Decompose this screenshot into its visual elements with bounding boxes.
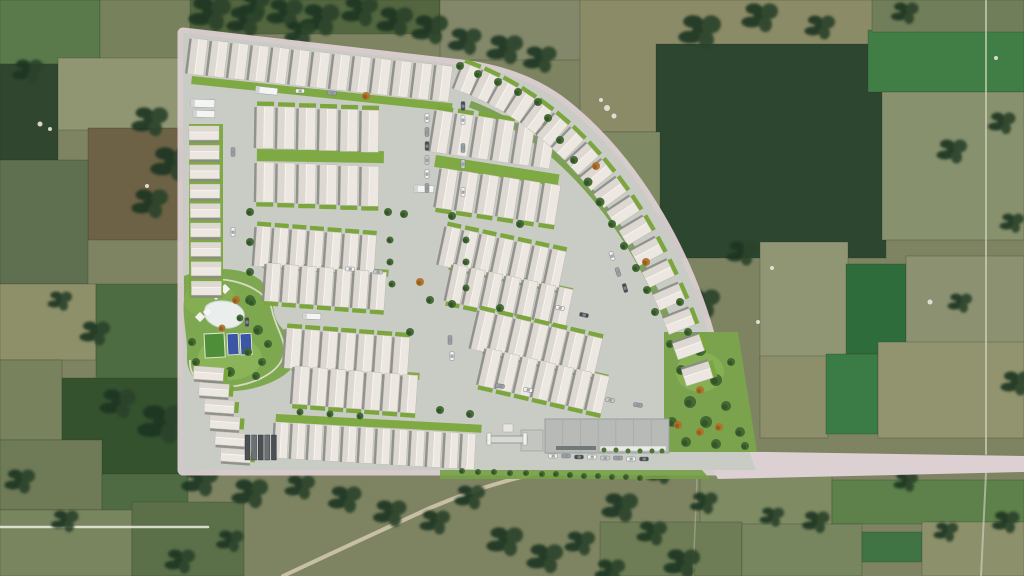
- farm-building: [756, 320, 760, 324]
- street-tree: [523, 470, 529, 476]
- house: [191, 242, 221, 259]
- street-tree: [539, 471, 545, 477]
- field-patch: [862, 532, 922, 562]
- field-patch: [96, 284, 186, 380]
- house-shadow: [192, 256, 221, 259]
- street-tree: [637, 475, 643, 481]
- street-tree: [556, 136, 564, 144]
- street-tree: [643, 286, 651, 294]
- front-garden: [257, 102, 274, 107]
- house: [343, 370, 364, 414]
- park-tree: [192, 358, 200, 366]
- field-patch: [742, 524, 862, 576]
- roof-slope: [190, 184, 220, 190]
- farm-building: [928, 300, 933, 305]
- bush: [602, 448, 607, 453]
- house: [314, 267, 334, 311]
- house: [338, 105, 358, 152]
- front-garden: [341, 105, 358, 110]
- house-shadow: [192, 276, 221, 279]
- roof-slope: [361, 166, 369, 206]
- field-patch: [868, 30, 1024, 92]
- car: [614, 456, 623, 460]
- loading-trucks: [245, 435, 276, 460]
- field-patch: [760, 356, 828, 438]
- house: [336, 328, 357, 374]
- house: [359, 105, 379, 152]
- house: [191, 223, 221, 240]
- car: [425, 114, 429, 123]
- house: [322, 227, 342, 273]
- house: [374, 428, 391, 465]
- street-tree: [581, 473, 587, 479]
- street-tree: [459, 468, 465, 474]
- house-row-west-col-upper: [189, 126, 221, 298]
- street-tree: [620, 242, 628, 250]
- bush: [638, 449, 643, 454]
- house: [332, 268, 352, 312]
- house: [209, 415, 245, 433]
- house: [391, 429, 408, 466]
- bush: [614, 448, 619, 453]
- house: [204, 399, 240, 417]
- house: [357, 230, 377, 276]
- street-tree: [362, 92, 370, 100]
- guard-booth: [503, 424, 513, 432]
- park-tree: [258, 358, 266, 366]
- front-garden: [278, 102, 295, 107]
- street-tree: [642, 258, 650, 266]
- farm-building: [38, 122, 43, 127]
- truck: [271, 435, 276, 460]
- house: [323, 425, 340, 462]
- car: [448, 336, 452, 345]
- house: [279, 264, 299, 308]
- field-patch: [656, 44, 886, 258]
- house: [340, 426, 357, 463]
- house: [300, 325, 321, 371]
- house: [397, 374, 418, 418]
- house: [190, 165, 220, 182]
- park-tree: [252, 372, 260, 380]
- park-tree: [735, 427, 745, 437]
- house: [296, 103, 316, 150]
- roof-slope: [189, 145, 219, 151]
- house: [254, 101, 274, 148]
- street-tree: [567, 472, 573, 478]
- house: [198, 382, 234, 400]
- house: [189, 145, 219, 162]
- street-tree: [676, 298, 684, 306]
- house: [190, 204, 220, 221]
- front-garden: [361, 206, 378, 211]
- house: [252, 221, 272, 267]
- house-shadow: [192, 295, 221, 298]
- car: [562, 454, 571, 458]
- street-tree: [246, 208, 254, 216]
- house: [261, 263, 281, 307]
- house: [275, 102, 295, 149]
- car: [425, 128, 429, 137]
- car: [588, 455, 597, 459]
- house: [254, 162, 274, 207]
- street-tree: [246, 268, 254, 276]
- farm-building: [770, 266, 774, 270]
- car: [327, 91, 336, 95]
- street-tree: [389, 281, 396, 288]
- street-tree: [623, 474, 629, 480]
- car: [425, 184, 429, 193]
- field-patch: [832, 480, 1024, 524]
- house: [361, 371, 382, 415]
- roof-slope: [190, 165, 220, 171]
- street-tree: [651, 308, 659, 316]
- bush: [650, 449, 655, 454]
- street-tree: [496, 304, 504, 312]
- park-tree: [681, 437, 691, 447]
- street-tree: [448, 212, 456, 220]
- street-tree: [327, 411, 334, 418]
- house: [296, 164, 316, 209]
- street-tree: [400, 210, 408, 218]
- house: [275, 163, 295, 208]
- house: [287, 224, 307, 270]
- house: [459, 433, 476, 470]
- sports-field: [204, 333, 225, 358]
- car: [461, 160, 465, 169]
- field-patch: [878, 342, 1024, 438]
- house: [325, 369, 346, 413]
- farm-building: [599, 98, 603, 102]
- car: [345, 267, 354, 271]
- street-tree: [456, 62, 464, 70]
- car: [461, 188, 465, 197]
- bush: [626, 449, 631, 454]
- field-patch: [0, 0, 100, 64]
- farm-building: [48, 127, 52, 131]
- street-tree: [474, 70, 482, 78]
- bush: [660, 449, 665, 454]
- house: [289, 423, 306, 460]
- street-tree: [387, 259, 394, 266]
- field-patch: [0, 284, 96, 360]
- house: [189, 126, 219, 143]
- street-tree: [534, 98, 542, 106]
- farm-building: [604, 105, 610, 111]
- house: [425, 431, 442, 468]
- street-tree: [553, 471, 559, 477]
- park-tree: [232, 296, 240, 304]
- street-tree: [596, 198, 605, 207]
- house-shadow: [192, 237, 221, 240]
- street-tree: [248, 298, 256, 306]
- roof-slope: [277, 163, 285, 203]
- house: [307, 367, 328, 411]
- gate-post: [523, 433, 527, 445]
- roof-slope: [190, 204, 220, 210]
- park-tree: [696, 386, 704, 394]
- park-tree: [727, 358, 735, 366]
- roof-slope: [298, 164, 306, 204]
- house: [215, 432, 251, 450]
- car: [373, 270, 382, 274]
- gate-canopy: [487, 436, 527, 443]
- sport-court: [227, 333, 239, 355]
- house: [289, 366, 310, 410]
- street-tree: [684, 328, 692, 336]
- roof-slope: [319, 108, 327, 150]
- house: [349, 270, 369, 314]
- street-tree: [514, 88, 522, 96]
- house: [318, 326, 339, 372]
- house: [269, 223, 289, 269]
- house-shadow: [191, 179, 220, 182]
- street-tree: [357, 413, 364, 420]
- street-tree: [416, 278, 424, 286]
- street-tree: [387, 237, 394, 244]
- roof-slope: [191, 281, 221, 287]
- street-tree: [246, 238, 254, 246]
- front-garden: [299, 103, 316, 108]
- roof-slope: [277, 107, 285, 149]
- house-shadow: [190, 140, 219, 143]
- house: [317, 104, 337, 151]
- roof-slope: [340, 109, 348, 151]
- car: [450, 352, 454, 361]
- street-tree: [544, 114, 552, 122]
- gate-post: [487, 433, 491, 445]
- street-tree: [570, 156, 578, 164]
- roof-slope: [191, 223, 221, 229]
- truck: [258, 435, 263, 460]
- truck: [252, 435, 257, 460]
- car: [549, 454, 558, 458]
- house: [304, 226, 324, 272]
- street-tree: [494, 78, 502, 86]
- roof-slope: [319, 164, 327, 204]
- house: [354, 329, 375, 375]
- street-tree: [491, 469, 497, 475]
- front-garden: [362, 106, 379, 111]
- truck: [245, 435, 250, 460]
- park-tree: [684, 396, 696, 408]
- house: [297, 266, 317, 310]
- street-tree: [595, 473, 601, 479]
- farm-building: [145, 184, 149, 188]
- street-tree: [406, 328, 414, 336]
- park-tree: [721, 401, 731, 411]
- car: [627, 457, 636, 461]
- house-shadow: [191, 218, 220, 221]
- street-tree: [426, 296, 434, 304]
- roof-slope: [298, 108, 306, 150]
- street-tree: [475, 469, 481, 475]
- front-garden: [277, 203, 294, 208]
- house: [193, 366, 229, 384]
- house: [191, 262, 221, 279]
- park-tree: [700, 416, 712, 428]
- street-tree: [507, 470, 513, 476]
- walkway-canopy: [600, 446, 666, 451]
- street-tree: [436, 406, 444, 414]
- street-tree: [448, 300, 456, 308]
- house: [191, 281, 221, 298]
- street-tree: [674, 421, 682, 429]
- street-tree: [696, 428, 704, 436]
- car: [461, 116, 465, 125]
- car: [245, 318, 249, 327]
- street-tree: [592, 162, 600, 170]
- car: [461, 144, 465, 153]
- field-patch: [846, 264, 906, 354]
- park-tree: [253, 325, 263, 335]
- street-tree: [384, 208, 392, 216]
- farm-building: [994, 56, 998, 60]
- front-garden: [256, 202, 273, 207]
- park-tree: [244, 348, 252, 356]
- roof-slope: [256, 162, 264, 202]
- house: [359, 166, 379, 211]
- entrance-canopy: [556, 446, 596, 450]
- field-patch: [0, 360, 62, 440]
- house: [390, 332, 411, 378]
- roof-slope: [191, 242, 221, 248]
- truck: [414, 185, 434, 193]
- car: [296, 89, 305, 93]
- house: [367, 271, 387, 315]
- front-garden: [319, 204, 336, 209]
- truck: [303, 313, 321, 320]
- street-tree: [608, 220, 616, 228]
- street-tree: [463, 237, 470, 244]
- field-patch: [88, 128, 186, 240]
- house: [379, 373, 400, 417]
- car: [640, 457, 649, 461]
- car: [425, 170, 429, 179]
- house: [317, 164, 337, 209]
- car: [461, 102, 465, 111]
- truck: [265, 435, 270, 460]
- front-garden: [340, 205, 357, 210]
- field-patch: [760, 242, 848, 360]
- car: [425, 156, 429, 165]
- masterplan-svg: [0, 0, 1024, 576]
- street-tree: [466, 410, 474, 418]
- house: [338, 165, 358, 210]
- house: [306, 424, 323, 461]
- car: [601, 456, 610, 460]
- house: [442, 432, 459, 469]
- house-shadow: [191, 198, 220, 201]
- park-tree: [711, 439, 721, 449]
- car: [425, 142, 429, 151]
- front-garden: [298, 204, 315, 209]
- house-shadow: [190, 159, 219, 162]
- street-tree: [632, 264, 640, 272]
- street-tree: [584, 178, 593, 187]
- farm-building: [612, 114, 617, 119]
- roof-slope: [189, 126, 219, 132]
- aerial-masterplan-view: [0, 0, 1024, 576]
- park-tree: [219, 325, 226, 332]
- street-tree: [463, 259, 470, 266]
- field-patch: [58, 58, 190, 130]
- park-tree: [237, 315, 244, 322]
- park-tree: [741, 442, 749, 450]
- roof-slope: [191, 262, 221, 268]
- truck: [191, 99, 215, 108]
- house: [372, 330, 393, 376]
- street-tree: [297, 409, 304, 416]
- roof-slope: [361, 110, 369, 152]
- house: [282, 323, 303, 369]
- street-tree: [463, 285, 470, 292]
- field-patch: [826, 354, 878, 434]
- park-tree: [715, 423, 723, 431]
- house: [190, 184, 220, 201]
- car: [575, 455, 584, 459]
- roof-slope: [256, 106, 264, 148]
- car: [231, 148, 235, 157]
- roof-slope: [340, 165, 348, 205]
- park-tree: [264, 340, 272, 348]
- street-tree: [609, 474, 615, 480]
- house: [357, 427, 374, 464]
- car: [231, 228, 235, 237]
- front-garden: [320, 104, 337, 109]
- house: [408, 430, 425, 467]
- park-tree: [188, 338, 196, 346]
- street-tree: [516, 220, 524, 228]
- truck: [193, 110, 215, 118]
- field-patch: [0, 160, 88, 284]
